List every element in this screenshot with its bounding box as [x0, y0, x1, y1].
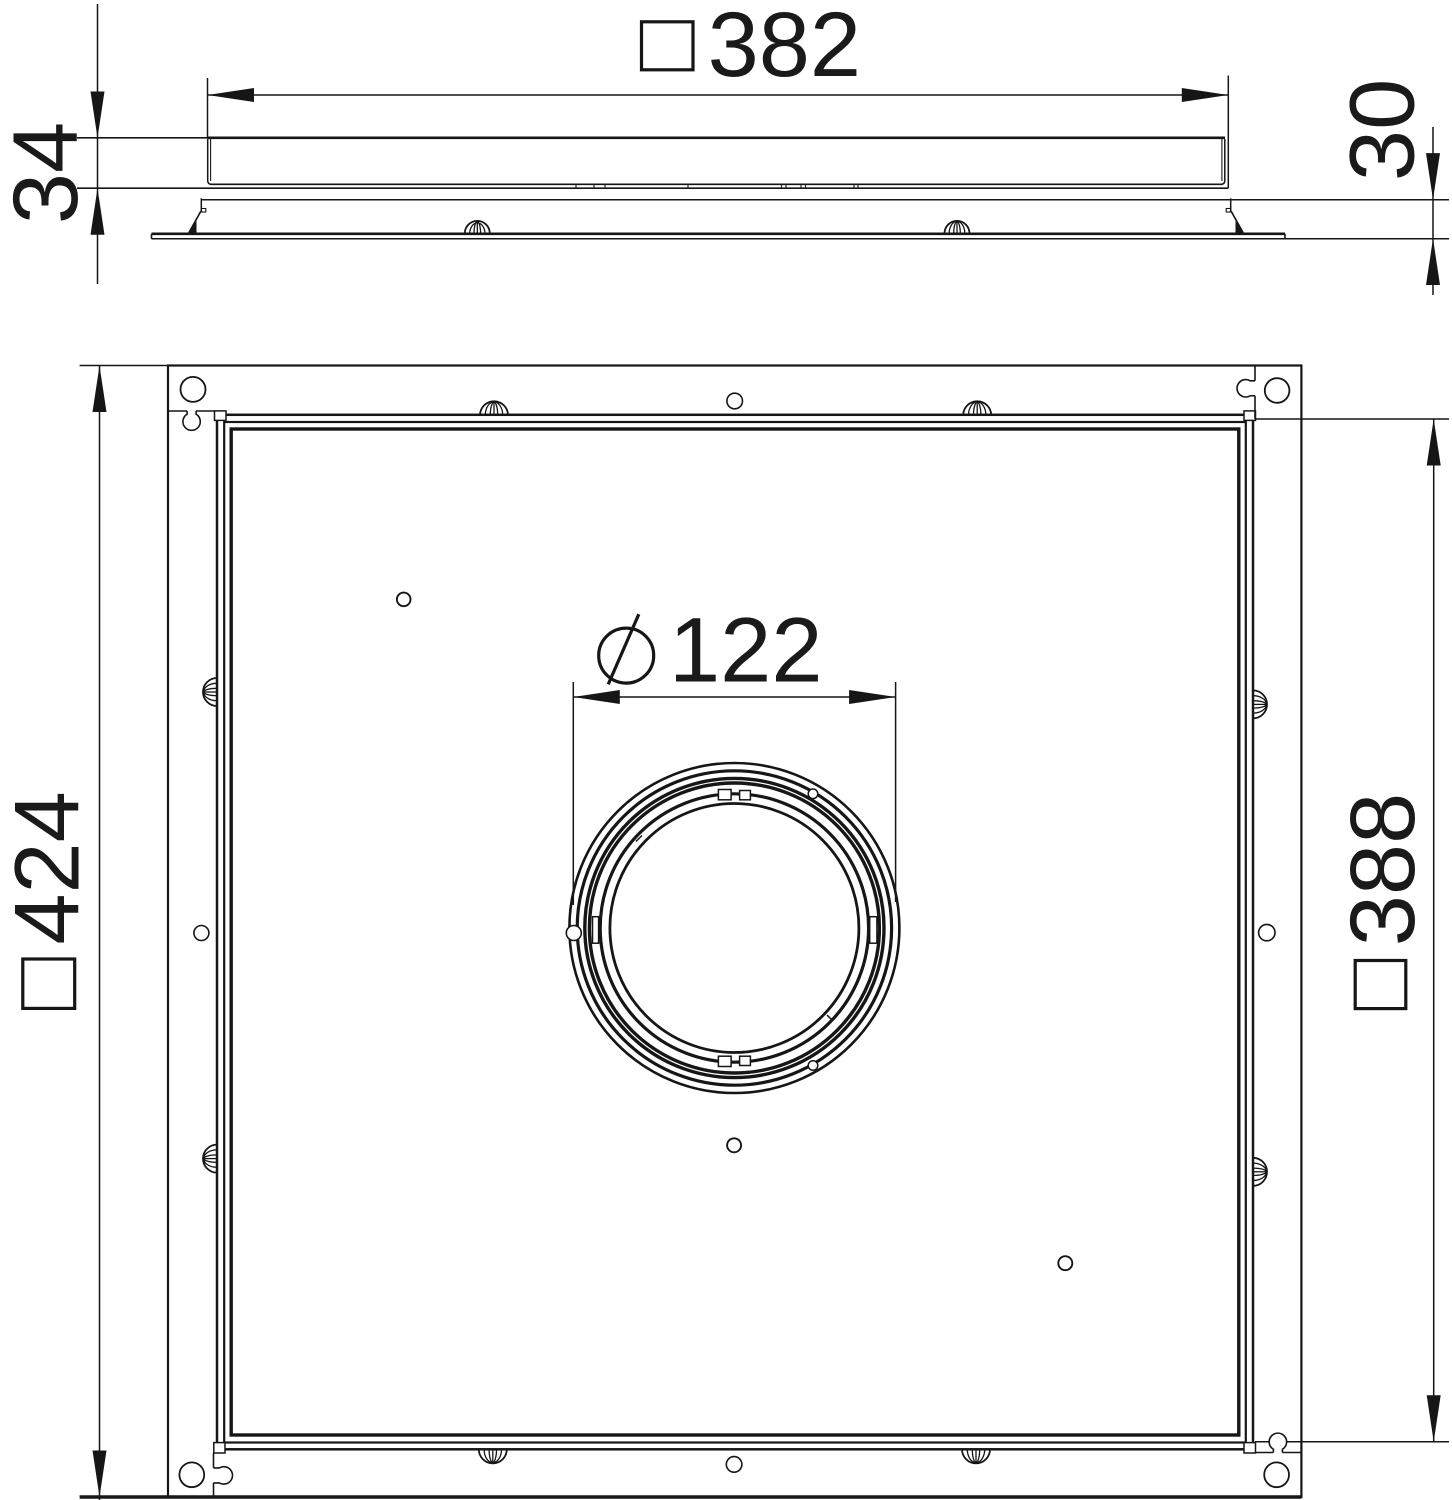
- svg-text:382: 382: [708, 0, 862, 96]
- svg-text:424: 424: [0, 791, 99, 945]
- svg-text:122: 122: [669, 600, 823, 702]
- svg-text:388: 388: [1332, 793, 1434, 947]
- svg-text:30: 30: [1332, 79, 1434, 181]
- svg-text:34: 34: [0, 122, 97, 224]
